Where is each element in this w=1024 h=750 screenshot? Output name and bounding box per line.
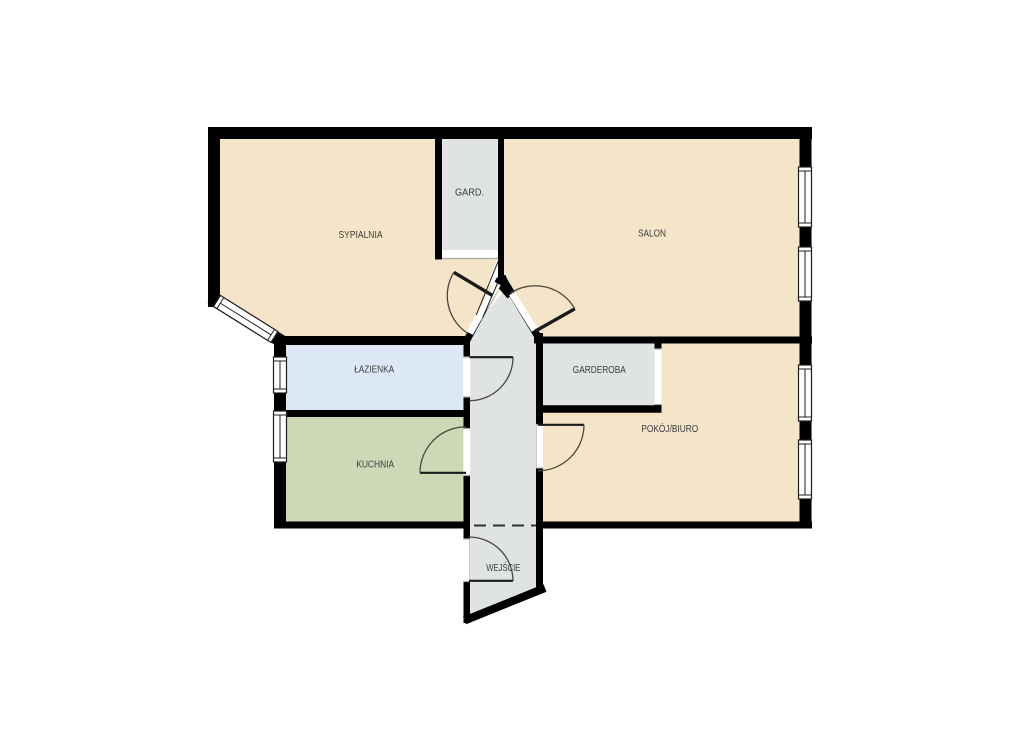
svg-text:WEJŚCIE: WEJŚCIE (486, 561, 520, 574)
svg-text:KUCHNIA: KUCHNIA (356, 459, 394, 470)
svg-text:SALON: SALON (638, 229, 666, 240)
svg-text:POKÓJ/BIURO: POKÓJ/BIURO (641, 422, 698, 435)
svg-text:ŁAZIENKA: ŁAZIENKA (354, 365, 394, 376)
svg-text:GARDEROBA: GARDEROBA (573, 365, 626, 376)
svg-text:SYPIALNIA: SYPIALNIA (339, 230, 383, 241)
svg-text:GARD.: GARD. (455, 187, 484, 198)
